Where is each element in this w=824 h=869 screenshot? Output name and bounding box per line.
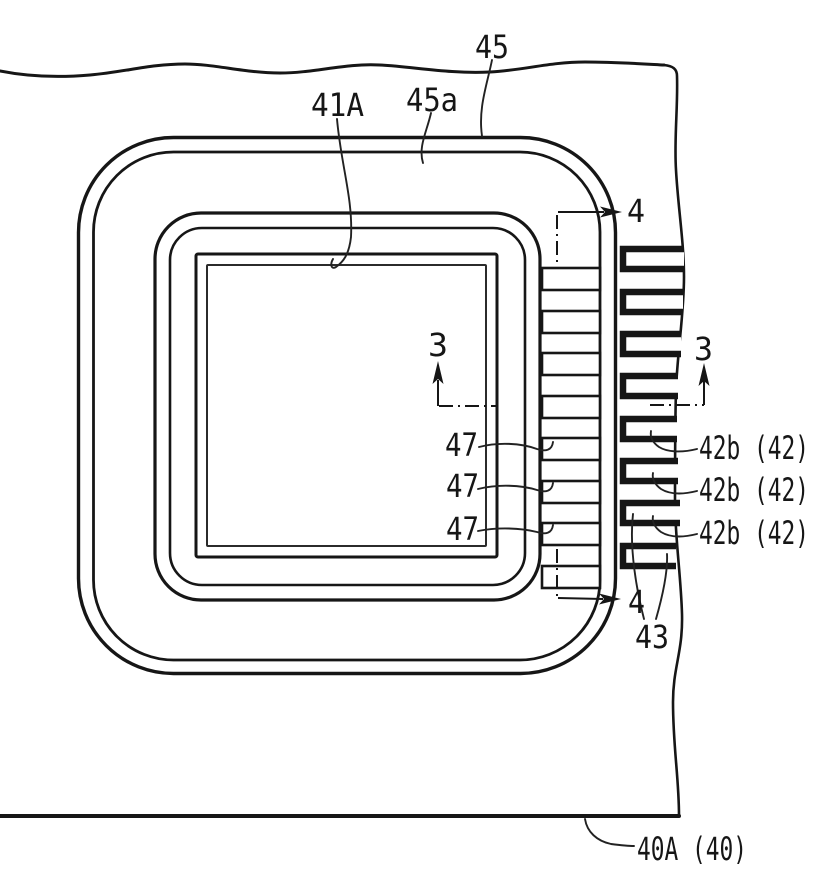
- sheet-top-torn-edge: [0, 62, 664, 76]
- reference-label-47-3: 47: [446, 510, 479, 548]
- reference-label-42b-3: 42b (42): [699, 514, 809, 552]
- leader-line-40A: [585, 819, 634, 846]
- reference-label-40A: 40A (40): [637, 830, 747, 868]
- groove-outer-line-45: [79, 138, 616, 674]
- reference-label-41A: 41A: [311, 86, 364, 124]
- inner-resin-outer-line: [155, 213, 540, 600]
- patent-figure-canvas: 4545a41A43347474742b (42)42b (42)42b (42…: [0, 0, 824, 869]
- inner-lead-bar-7: [542, 523, 600, 545]
- reference-label-43: 43: [635, 618, 669, 656]
- reference-label-42b-1: 42b (42): [699, 429, 809, 467]
- patent-figure-page: 4545a41A43347474742b (42)42b (42)42b (42…: [0, 0, 824, 869]
- terminal-lead-4: [623, 376, 678, 396]
- terminal-lead-3: [623, 334, 681, 354]
- package-outlines: [79, 138, 616, 674]
- inner-lead-bar-6: [542, 481, 600, 503]
- inner-lead-bar-2: [542, 311, 600, 333]
- inner-lead-bars-47: [542, 268, 600, 588]
- reference-label-42b-2: 42b (42): [699, 471, 809, 509]
- terminal-lead-8: [623, 546, 676, 566]
- inner-lead-bar-3: [542, 353, 600, 375]
- reference-label-4-bottom: 4: [628, 583, 645, 621]
- reference-label-3-left: 3: [428, 326, 448, 364]
- terminal-lead-2: [623, 292, 683, 312]
- leader-line-41A: [331, 119, 351, 268]
- reference-label-3-right: 3: [694, 330, 713, 368]
- terminal-lead-6: [623, 461, 678, 481]
- terminal-lead-5: [623, 419, 677, 439]
- inner-lead-bar-1: [542, 268, 600, 290]
- section-4-bottom-stem: [558, 598, 603, 599]
- reference-label-47-1: 47: [445, 426, 478, 464]
- reference-label-45: 45: [475, 28, 509, 66]
- inner-lead-bar-4: [542, 396, 600, 418]
- reference-label-47-2: 47: [446, 467, 479, 505]
- leader-lines: [331, 60, 697, 846]
- reference-label-45a: 45a: [406, 81, 458, 119]
- reference-label-4-top: 4: [627, 192, 645, 230]
- terminal-lead-1: [623, 249, 684, 269]
- inner-lead-bar-8: [542, 566, 600, 588]
